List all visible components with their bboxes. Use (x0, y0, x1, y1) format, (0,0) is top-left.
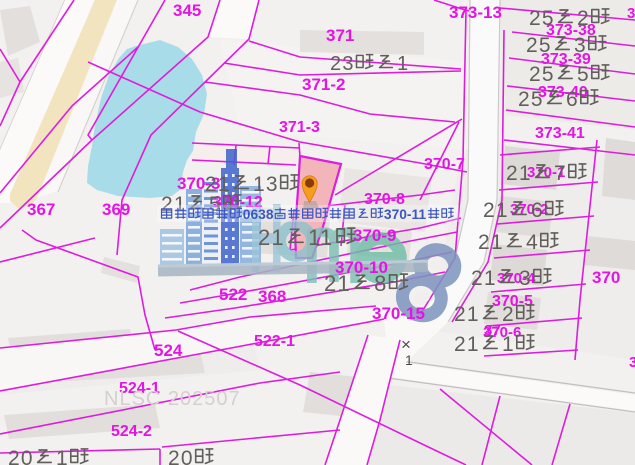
svg-text:NLSC 202507: NLSC 202507 (104, 388, 241, 410)
svg-text:1: 1 (405, 352, 413, 368)
svg-text:371-3: 371-3 (279, 119, 320, 136)
svg-text:5: 5 (577, 63, 590, 86)
svg-text:21: 21 (454, 333, 480, 356)
svg-text:522: 522 (219, 285, 247, 304)
svg-text:370-11: 370-11 (384, 207, 427, 222)
svg-text:7: 7 (554, 162, 567, 185)
svg-text:21: 21 (483, 199, 509, 222)
svg-text:3: 3 (627, 5, 635, 22)
svg-text:370: 370 (592, 268, 620, 287)
svg-text:6: 6 (531, 199, 544, 222)
svg-text:21: 21 (506, 162, 532, 185)
svg-text:4: 4 (526, 231, 539, 254)
svg-text:3: 3 (629, 354, 635, 371)
svg-text:25: 25 (529, 63, 555, 86)
svg-text:21: 21 (478, 231, 504, 254)
svg-text:371-2: 371-2 (302, 75, 345, 94)
svg-text:522-1: 522-1 (254, 333, 295, 350)
svg-text:3: 3 (574, 34, 587, 57)
svg-text:21: 21 (471, 267, 497, 290)
svg-text:2: 2 (502, 303, 515, 326)
svg-text:345: 345 (173, 1, 201, 20)
svg-text:21: 21 (258, 225, 285, 250)
svg-text:8: 8 (374, 271, 387, 296)
svg-text:1: 1 (397, 53, 409, 75)
svg-text:25: 25 (529, 7, 555, 30)
svg-text:23: 23 (330, 53, 355, 75)
svg-text:373-41: 373-41 (535, 125, 585, 142)
svg-text:25: 25 (526, 34, 552, 57)
svg-text:25: 25 (518, 88, 544, 111)
svg-text:368: 368 (258, 287, 286, 306)
svg-text:20: 20 (168, 447, 194, 465)
svg-text:1: 1 (502, 333, 515, 356)
svg-text:21: 21 (324, 271, 351, 296)
svg-text:367: 367 (27, 200, 55, 219)
svg-text:11: 11 (308, 225, 333, 250)
svg-text:524-2: 524-2 (111, 423, 152, 440)
svg-text:370-15: 370-15 (372, 304, 425, 323)
svg-text:371: 371 (326, 26, 354, 45)
svg-text:21: 21 (454, 303, 480, 326)
svg-text:370-9: 370-9 (353, 226, 396, 245)
svg-text:370-7: 370-7 (424, 156, 465, 173)
svg-text:1: 1 (56, 447, 69, 465)
svg-text:3: 3 (519, 267, 532, 290)
svg-text:373-13: 373-13 (449, 3, 502, 22)
svg-text:2: 2 (577, 7, 590, 30)
svg-text:13: 13 (253, 173, 279, 196)
svg-text:20: 20 (8, 447, 34, 465)
svg-text:369: 369 (102, 200, 130, 219)
svg-text:6: 6 (566, 88, 579, 111)
svg-text:0638: 0638 (243, 207, 274, 222)
svg-text:524: 524 (154, 341, 183, 360)
